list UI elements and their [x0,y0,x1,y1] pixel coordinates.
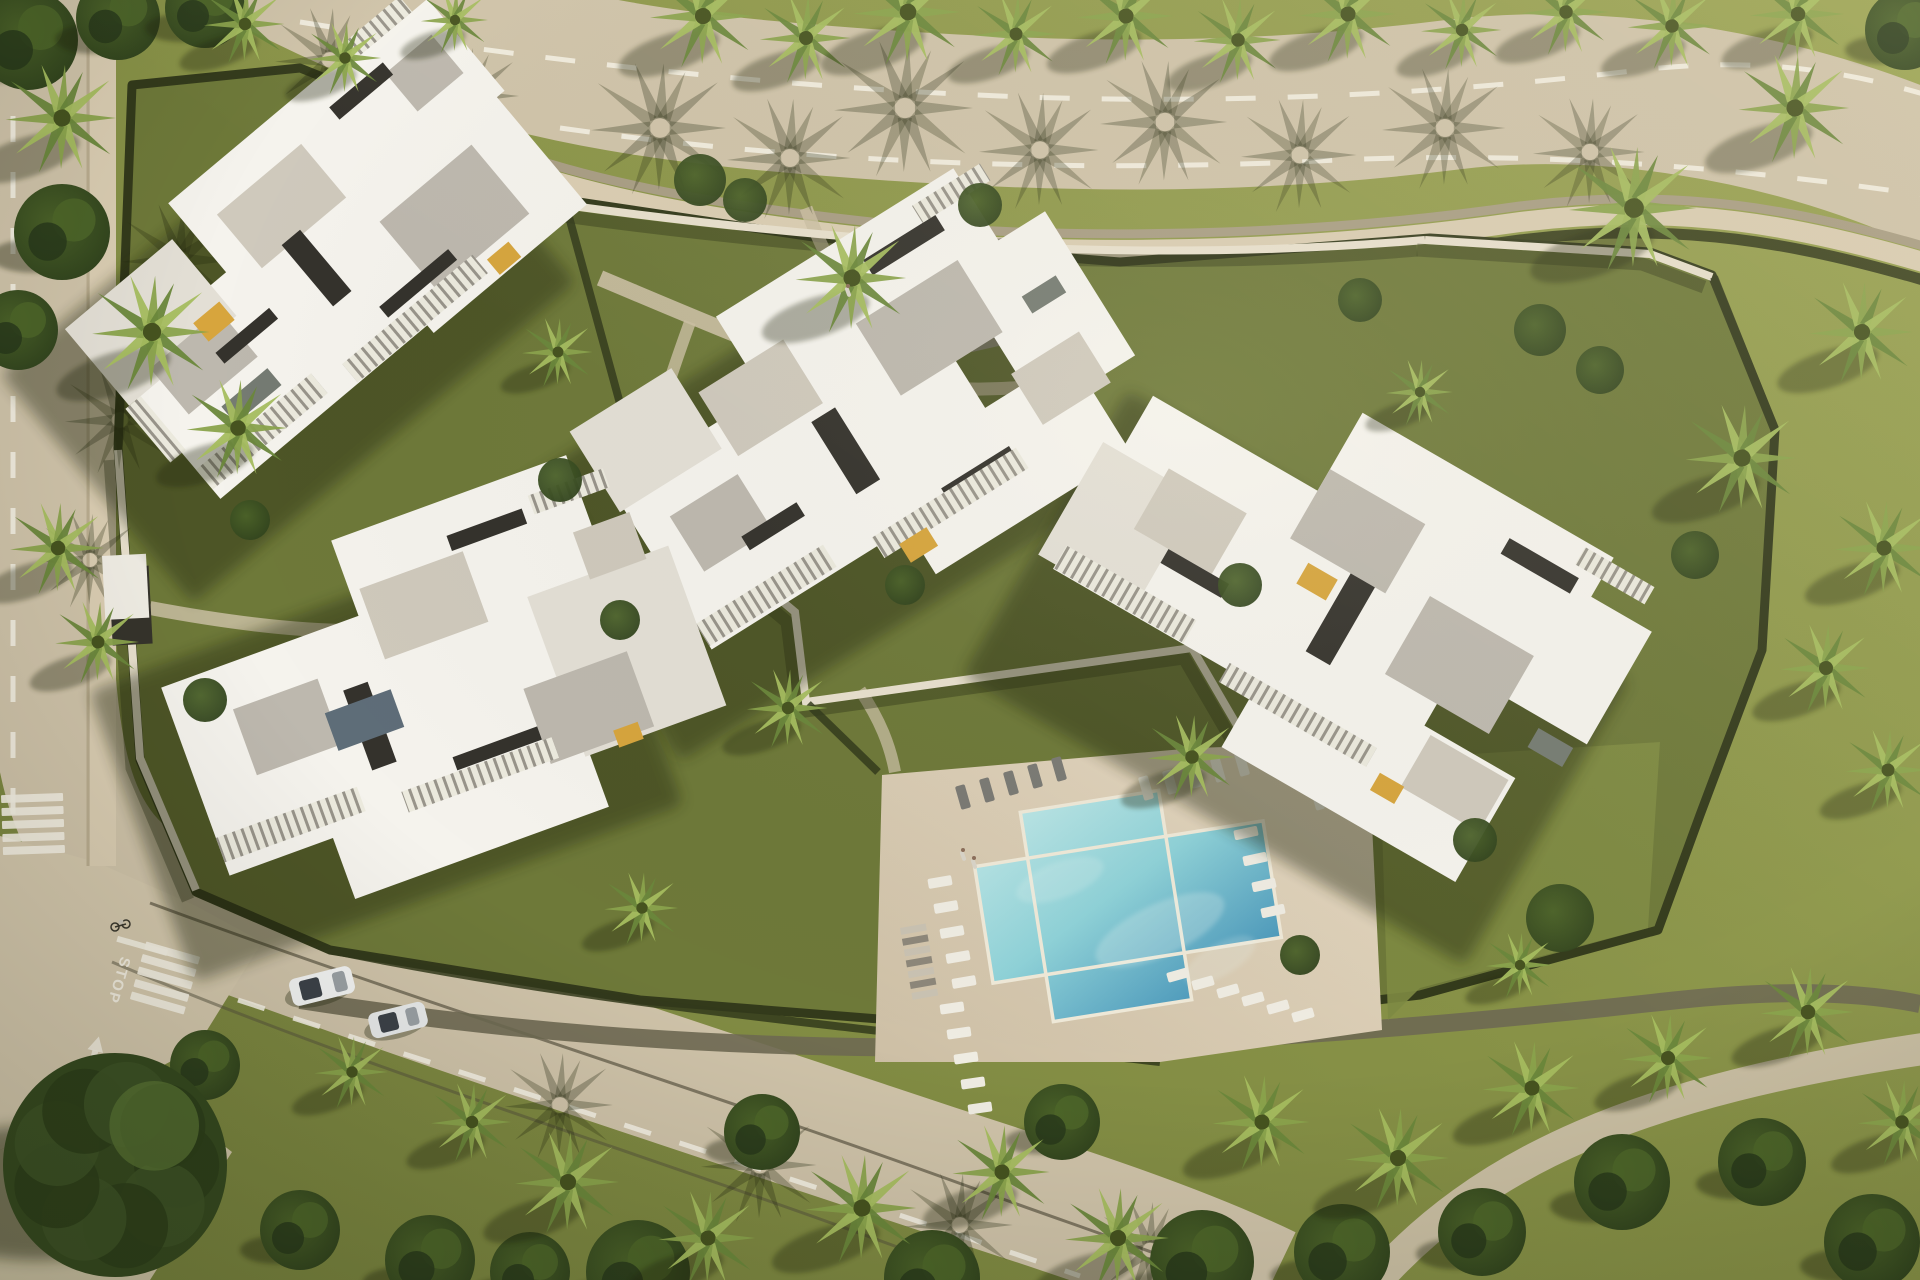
render-canvas: STOP [0,0,1920,1280]
lighting-overlay [0,0,1920,1280]
aerial-residential-render: STOP [0,0,1920,1280]
